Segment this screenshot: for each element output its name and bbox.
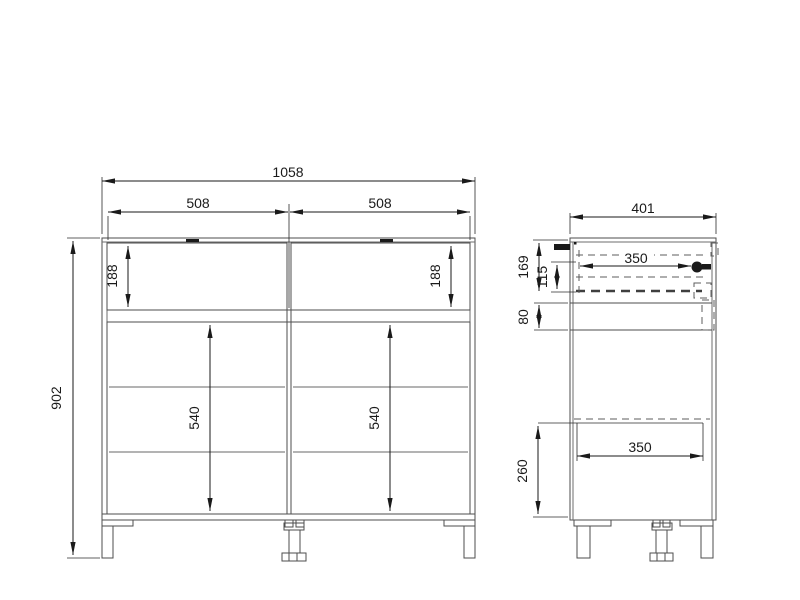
drawer-handle-left-icon xyxy=(186,239,199,242)
dim-left-drawer-height-label: 188 xyxy=(104,264,120,288)
drawer-front-left xyxy=(107,243,287,310)
dim-door-heights: 540 540 xyxy=(186,325,390,511)
dim-total-height-label: 902 xyxy=(48,386,64,410)
dim-drawer-slide-length-label: 350 xyxy=(624,250,648,266)
drawer-front-right xyxy=(291,243,470,310)
side-center-adjustable-foot xyxy=(650,520,673,561)
dim-total-height: 902 xyxy=(48,238,100,558)
side-front-leg xyxy=(574,520,611,558)
dim-right-drawer-width-label: 508 xyxy=(368,195,392,211)
side-back-leg xyxy=(680,520,713,558)
dim-right-door-height-label: 540 xyxy=(366,406,382,430)
shelf-lines xyxy=(109,387,468,452)
dim-left-door-height-label: 540 xyxy=(186,406,202,430)
dim-total-width: 1058 xyxy=(102,164,475,234)
dim-shelf-depth-label: 350 xyxy=(628,439,652,455)
drawer-handle-right-icon xyxy=(380,239,393,242)
dim-drawer-widths: 508 508 xyxy=(108,195,470,308)
dim-drawer-side-height-label: 115 xyxy=(534,266,550,289)
front-carcass-lines xyxy=(102,238,475,520)
side-carcass-lines xyxy=(570,238,716,520)
front-left-leg xyxy=(102,520,133,558)
dim-base-zone-height: 260 xyxy=(514,426,568,517)
dim-drawer-zone-height-label: 169 xyxy=(515,255,531,279)
drawer-slide-roller-icon xyxy=(692,262,712,273)
dim-shelf-depth: 350 xyxy=(538,423,703,461)
side-view: 350 350 xyxy=(514,200,718,561)
dim-drawer-heights: 188 188 xyxy=(104,246,451,307)
front-view: 1058 508 508 188 188 540 540 xyxy=(48,164,475,561)
front-center-adjustable-foot xyxy=(282,520,306,561)
dim-drawer-slide-length: 350 xyxy=(580,250,691,266)
dim-right-drawer-height-label: 188 xyxy=(427,264,443,288)
dim-total-width-label: 1058 xyxy=(272,164,303,180)
dim-base-zone-height-label: 260 xyxy=(514,459,530,483)
cabinet-dimension-drawing: 1058 508 508 188 188 540 540 xyxy=(0,0,800,600)
dim-rail-gap: 80 xyxy=(515,303,568,330)
dim-left-drawer-width-label: 508 xyxy=(186,195,210,211)
front-right-leg xyxy=(444,520,475,558)
dim-depth-label: 401 xyxy=(631,200,655,216)
drawer-handle-side-icon xyxy=(554,244,570,250)
dim-rail-gap-label: 80 xyxy=(515,309,531,325)
technical-drawing-page: 1058 508 508 188 188 540 540 xyxy=(0,0,800,600)
dim-depth: 401 xyxy=(570,200,716,234)
